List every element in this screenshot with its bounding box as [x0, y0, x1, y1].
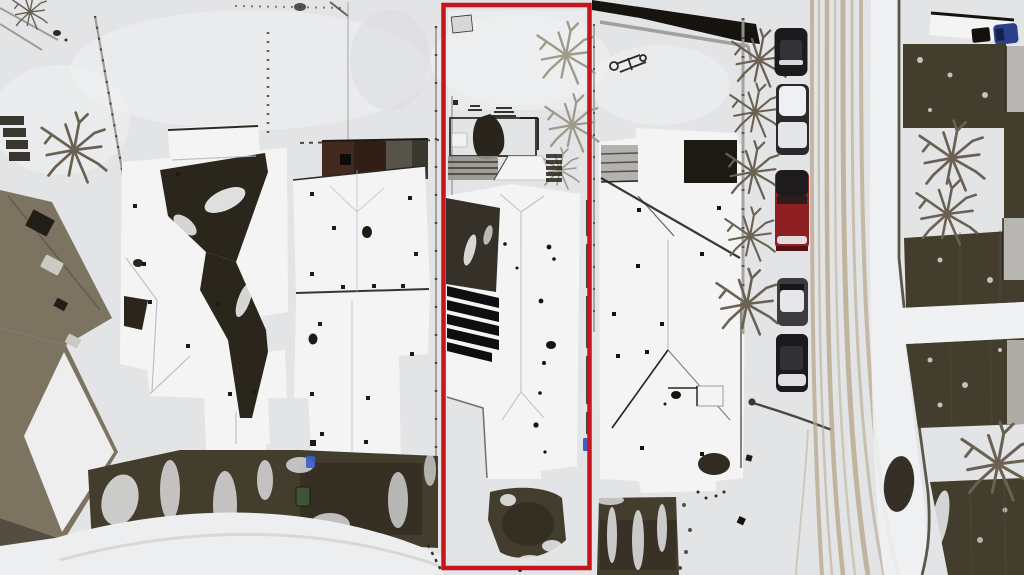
utility-box-green	[296, 487, 310, 506]
bare-roof-square	[684, 140, 737, 183]
aerial-photo-canvas	[0, 0, 1024, 575]
dirt-patch	[698, 453, 730, 475]
car-black-suv	[775, 28, 808, 76]
car-red-suv	[775, 170, 809, 251]
car-black-sedan	[776, 334, 808, 392]
sidewalk-band	[899, 302, 1024, 344]
car-snow-covered	[776, 84, 809, 155]
aerial-photo	[0, 0, 1024, 575]
blue-vehicle	[993, 23, 1019, 45]
car-gray	[777, 278, 808, 326]
recycling-bin-blue	[306, 456, 315, 468]
hot-tub-cover	[452, 133, 467, 147]
